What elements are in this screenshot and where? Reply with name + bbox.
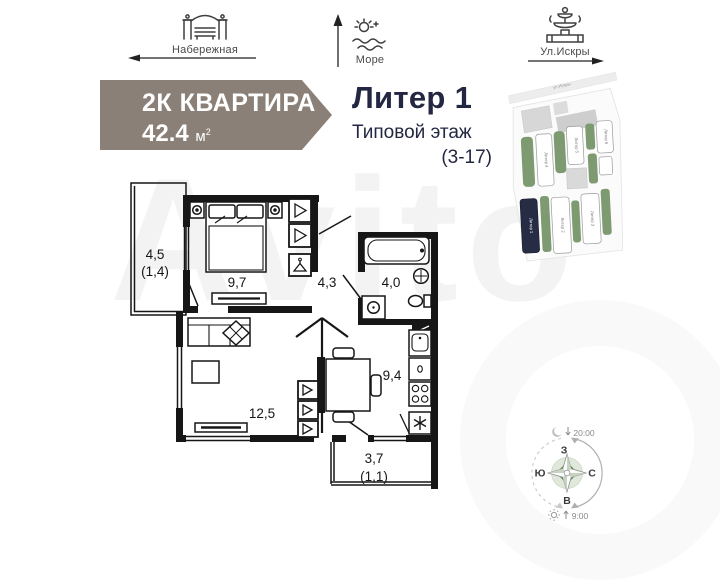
room-label-hall: 4,3: [318, 275, 337, 290]
room-label-bathroom: 4,0: [382, 275, 401, 290]
dining-table-icon: [326, 348, 381, 422]
rose-center: [564, 470, 570, 476]
room-label-balcony-top: 4,5: [146, 247, 165, 262]
fountain-icon: [543, 6, 587, 44]
fridge-icon: [400, 412, 431, 434]
bed-icon: [206, 202, 266, 272]
room-label-living: 12,5: [249, 406, 275, 421]
site-building-label-highlighted: Литер 1: [528, 218, 534, 234]
arc-arrowhead: [556, 503, 564, 509]
landmark-sea: Море: [346, 18, 394, 66]
room-label-kitchen: 9,4: [383, 368, 402, 383]
floor-plan: 4,5 (1,4) 9,7 4,3 4,0 12,5 9,4 3,7 (1,1): [100, 175, 445, 520]
sunset-time: 20:00: [573, 428, 595, 438]
compass-west: З: [561, 445, 568, 457]
sunrise-time: 9:00: [572, 511, 589, 521]
bathtub-icon: [364, 237, 429, 264]
arc-arrowhead: [571, 438, 579, 444]
site-building-label: Литер 5: [574, 138, 580, 154]
flat-area: 42.4 м2: [142, 120, 332, 148]
sun-icon: [548, 509, 560, 521]
sunset-arrow-icon: [566, 427, 570, 435]
arc-arrowhead: [571, 503, 579, 509]
sea-icon: [349, 18, 391, 52]
living-wardrobe-icon: [298, 381, 318, 437]
arrow-left-icon: [128, 52, 260, 64]
sofa-icon: [188, 318, 250, 346]
sunrise-arrow-icon: [564, 511, 568, 519]
compass-north: С: [588, 468, 596, 480]
landmark-iskry: Ул.Искры: [522, 6, 608, 58]
arrow-up-icon: [331, 14, 345, 68]
flat-area-value: 42.4: [142, 120, 189, 147]
flat-type-badge: 2К КВАРТИРА 42.4 м2: [100, 80, 332, 150]
living-tv-stand-icon: [195, 423, 247, 432]
embankment-icon: [181, 8, 229, 42]
site-building-label: Литер 4: [544, 152, 550, 168]
washing-machine-icon: [362, 296, 385, 319]
flat-type-label: 2К КВАРТИРА: [142, 89, 332, 118]
site-building-label: Литер 6: [603, 129, 609, 145]
landmark-embankment: Набережная: [150, 8, 260, 56]
sunset-row: 20:00: [552, 427, 595, 438]
floor-type: Типовой этаж: [352, 122, 492, 144]
site-building-label: Литер 3: [590, 211, 596, 227]
room-label-bedroom: 9,7: [228, 275, 247, 290]
compass-south: Ю: [535, 468, 546, 480]
compass-rose: 20:00 З Ю С В 9:00: [500, 405, 635, 530]
floor-range: (3-17): [352, 147, 492, 169]
sunrise-row: 9:00: [548, 509, 589, 521]
room-label-balcony-bottom: 3,7: [365, 451, 384, 466]
coffee-table-icon: [192, 361, 219, 383]
bathroom-sink-icon: [414, 269, 429, 284]
moon-icon: [552, 427, 561, 437]
room-label-balcony-bottom-reduced: (1,1): [360, 469, 388, 484]
landmark-label: Море: [356, 54, 384, 66]
compass-east: В: [563, 495, 571, 507]
hall-wardrobe-icon: [289, 199, 311, 276]
building-title-block: Литер 1 Типовой этаж (3-17): [352, 80, 492, 169]
bedroom-tv-cabinet-icon: [212, 293, 266, 304]
listing-floorplan-image: { "landmarks": { "items": [ {"label": "Н…: [0, 0, 720, 540]
site-plan: ул.Искры Литер 4 Литер 5: [503, 60, 665, 295]
flat-area-unit: м2: [195, 128, 210, 145]
toilet-icon: [409, 295, 432, 307]
building-name: Литер 1: [352, 80, 492, 116]
room-label-balcony-top-reduced: (1,4): [141, 264, 169, 279]
site-building-label: Литер 2: [560, 217, 566, 233]
kitchen-counter-icon: [409, 330, 431, 406]
